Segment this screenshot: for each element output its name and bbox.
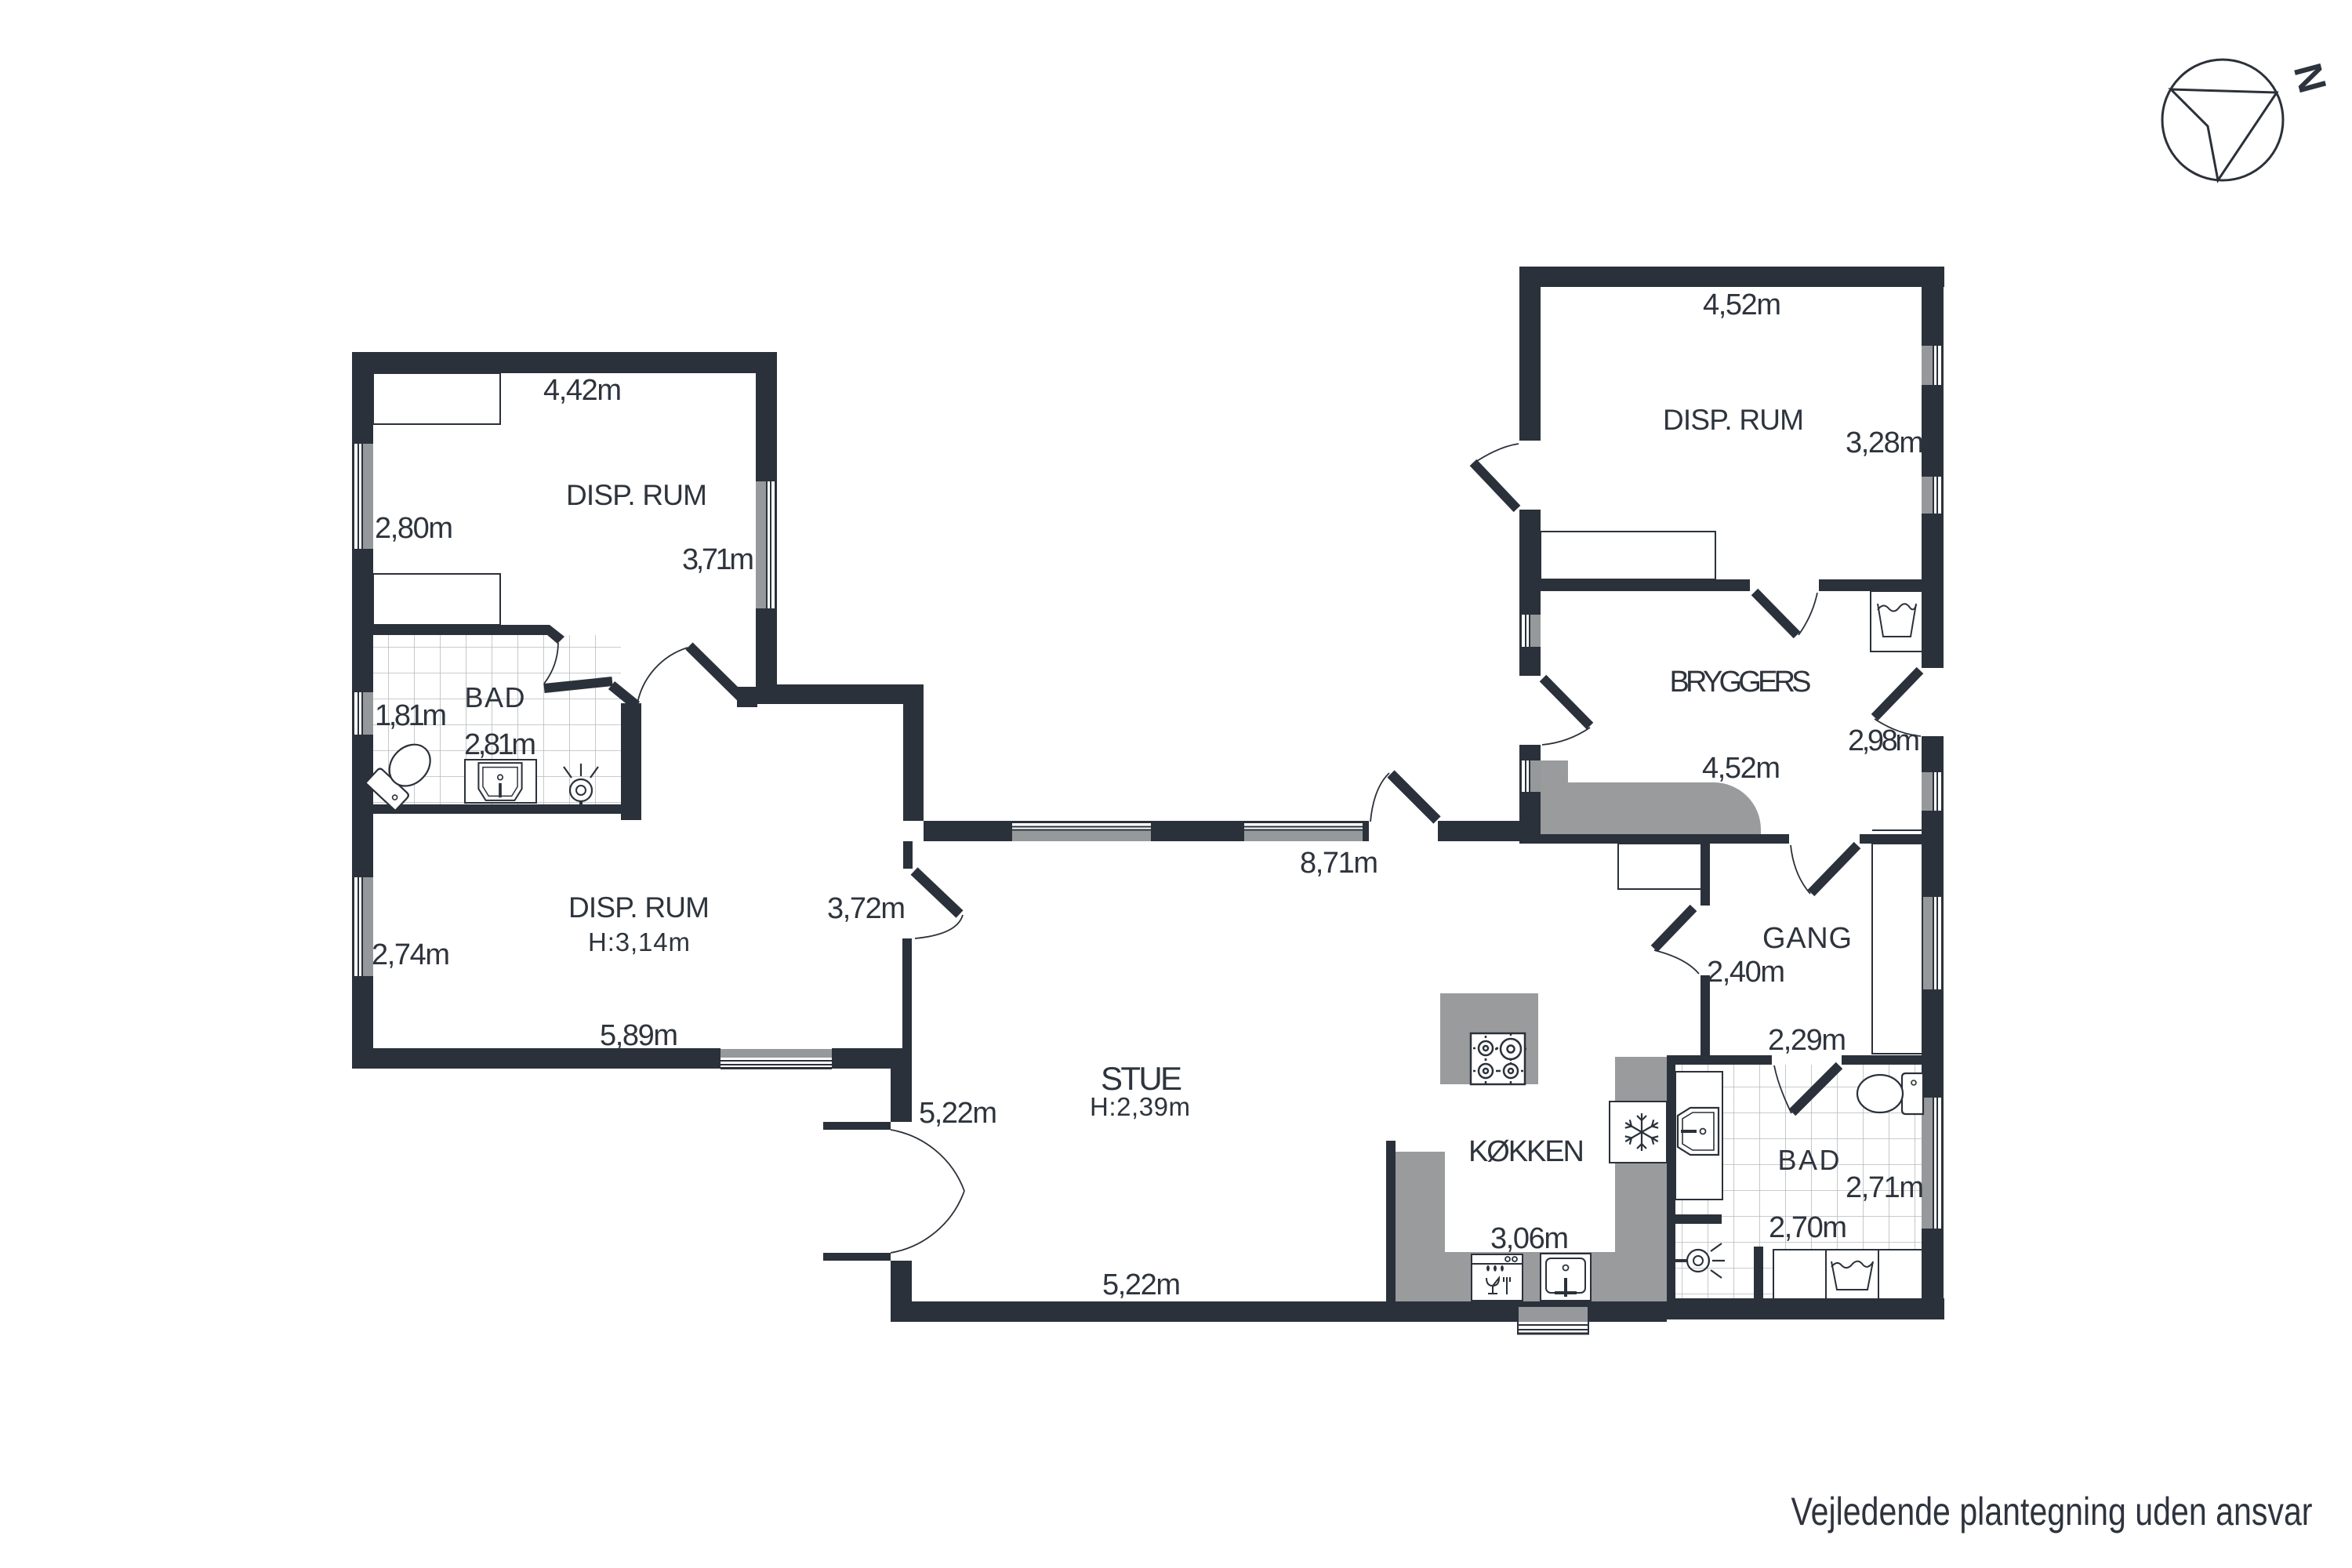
svg-text:2,80m: 2,80m <box>375 512 453 545</box>
svg-text:3,06m: 3,06m <box>1490 1222 1569 1255</box>
svg-text:DISP. RUM: DISP. RUM <box>568 891 710 924</box>
svg-text:BAD: BAD <box>1778 1144 1840 1176</box>
svg-text:4,52m: 4,52m <box>1702 752 1780 785</box>
svg-text:3,72m: 3,72m <box>827 892 906 925</box>
svg-text:8,71m: 8,71m <box>1300 847 1378 880</box>
svg-text:3,28m: 3,28m <box>1846 426 1924 459</box>
svg-text:2,40m: 2,40m <box>1707 956 1785 989</box>
svg-text:H:2,39m: H:2,39m <box>1090 1092 1190 1121</box>
svg-text:1,81m: 1,81m <box>375 699 447 732</box>
svg-text:2,29m: 2,29m <box>1768 1024 1846 1057</box>
svg-text:5,89m: 5,89m <box>600 1019 678 1052</box>
svg-text:DISP. RUM: DISP. RUM <box>1663 404 1804 436</box>
svg-text:Vejledende plantegning uden an: Vejledende plantegning uden ansvar <box>1791 1490 2313 1534</box>
svg-text:DISP. RUM: DISP. RUM <box>566 479 707 511</box>
svg-text:STUE: STUE <box>1101 1060 1182 1097</box>
svg-text:2,70m: 2,70m <box>1769 1211 1847 1244</box>
svg-text:4,42m: 4,42m <box>543 374 622 407</box>
svg-text:GANG: GANG <box>1762 922 1852 955</box>
svg-text:4,52m: 4,52m <box>1703 289 1781 321</box>
svg-text:2,74m: 2,74m <box>372 938 450 971</box>
svg-text:2,81m: 2,81m <box>464 728 536 761</box>
svg-text:3,71m: 3,71m <box>682 543 754 576</box>
svg-text:BAD: BAD <box>465 681 525 713</box>
svg-text:2,98m: 2,98m <box>1848 724 1920 757</box>
svg-text:H:3,14m: H:3,14m <box>588 927 690 956</box>
svg-text:KØKKEN: KØKKEN <box>1468 1135 1584 1168</box>
svg-text:5,22m: 5,22m <box>1102 1269 1181 1301</box>
svg-text:5,22m: 5,22m <box>919 1097 997 1130</box>
svg-text:2,71m: 2,71m <box>1846 1171 1924 1204</box>
svg-text:BRYGGERS: BRYGGERS <box>1670 666 1812 699</box>
